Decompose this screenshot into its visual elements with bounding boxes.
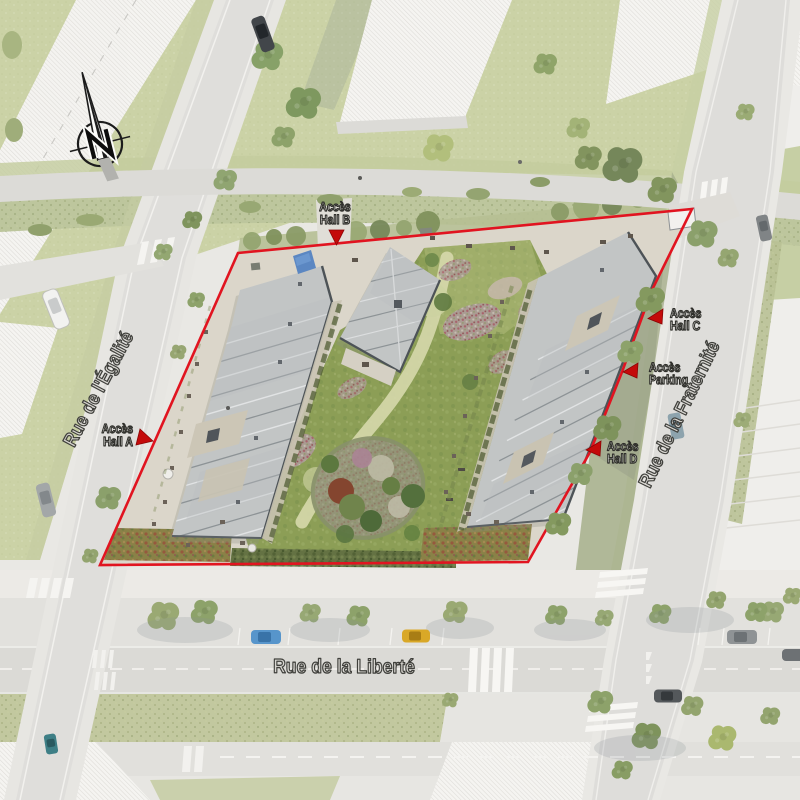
svg-text:Hall A: Hall A	[103, 434, 133, 449]
svg-text:Hall C: Hall C	[670, 318, 701, 333]
svg-text:Rue de la Liberté: Rue de la Liberté	[273, 656, 415, 678]
svg-text:Hall B: Hall B	[320, 212, 350, 227]
svg-text:Hall D: Hall D	[607, 451, 637, 466]
